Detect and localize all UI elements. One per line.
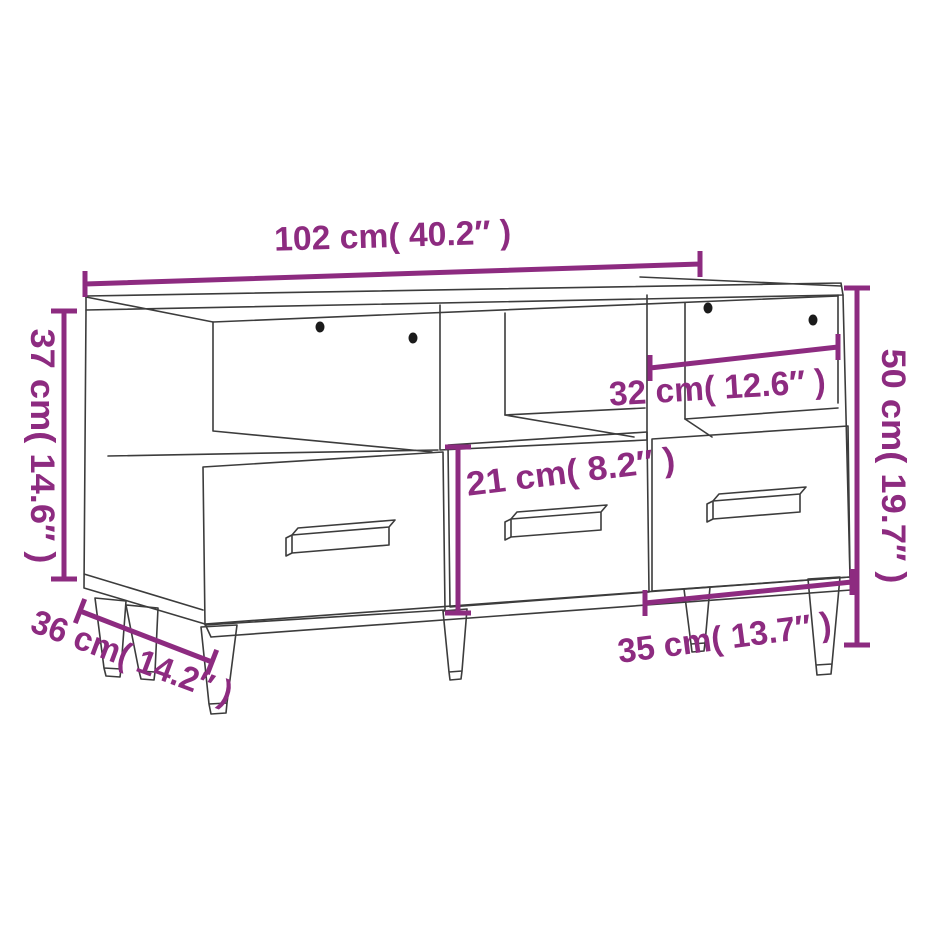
dim-label-overall-height: 50 cm( 19.7″ ) [874,349,912,584]
screw-hole-icon [809,315,818,326]
screw-hole-icon [704,303,713,314]
dim-label-top-width: 102 cm( 40.2″ ) [274,213,512,258]
tv-stand-dimension-diagram: 102 cm( 40.2″ ) 37 cm( 14.6″ ) 50 cm( 19… [0,0,947,947]
dim-label-left-height: 37 cm( 14.6″ ) [23,329,61,564]
screw-hole-icon [316,322,325,333]
diagram-canvas: 102 cm( 40.2″ ) 37 cm( 14.6″ ) 50 cm( 19… [0,0,947,947]
screw-hole-icon [409,333,418,344]
